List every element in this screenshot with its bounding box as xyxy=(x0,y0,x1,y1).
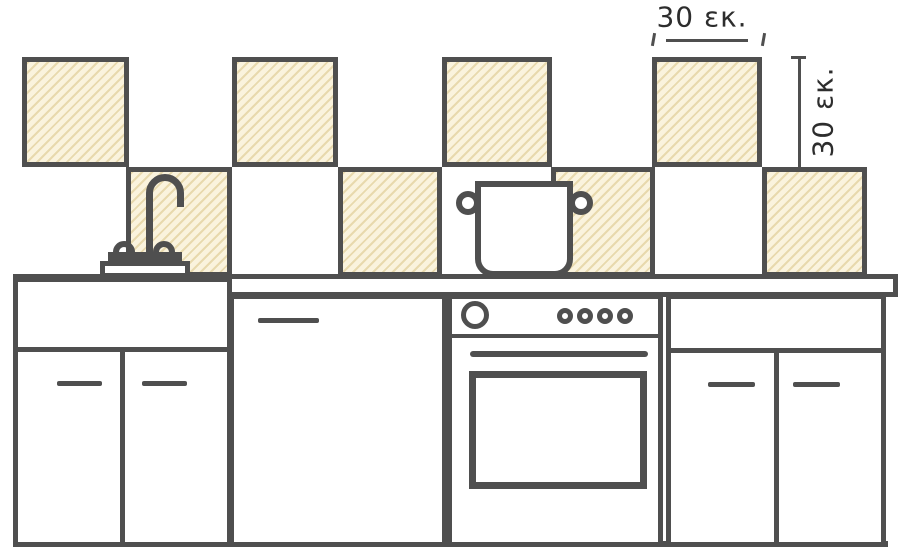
tile-height-dimension-tick-top xyxy=(791,56,806,59)
tile-height-dimension-label: 30 εκ. xyxy=(807,66,840,157)
tile-width-dimension-label: 30 εκ. xyxy=(656,1,747,34)
tile-height-dimension-line xyxy=(798,58,801,167)
kitchen-diagram: 30 εκ. 30 εκ. xyxy=(0,0,903,559)
tile-width-dimension-line xyxy=(666,39,748,42)
faucet-icon xyxy=(0,0,903,559)
